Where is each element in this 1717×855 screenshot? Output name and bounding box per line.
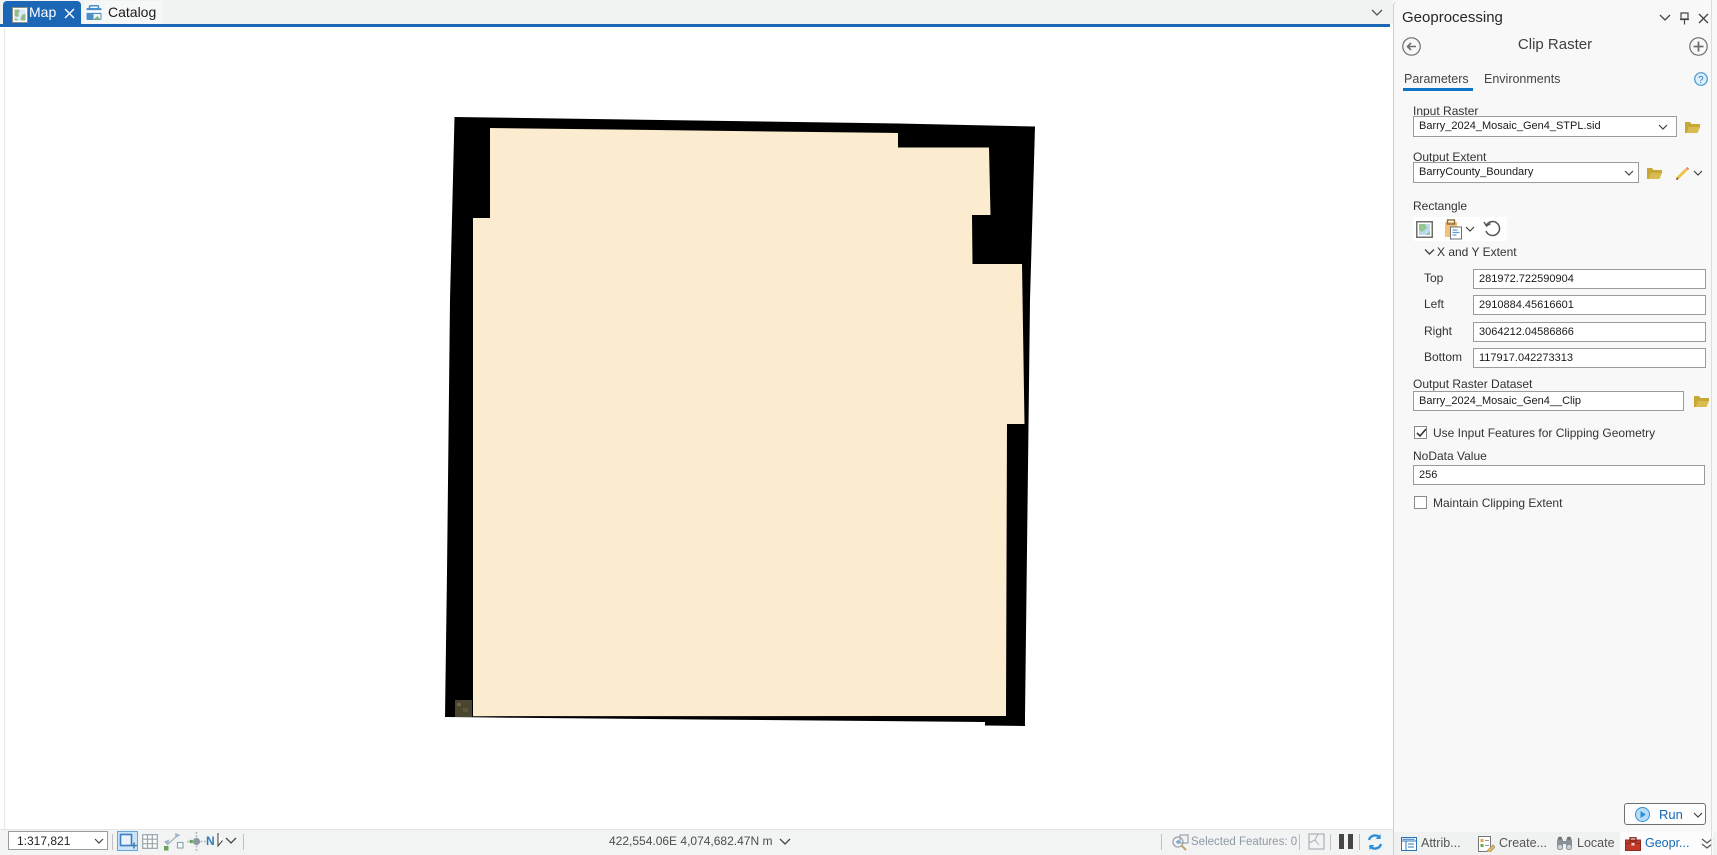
svg-text:N: N <box>206 834 215 848</box>
svg-text:?: ? <box>1698 75 1704 86</box>
